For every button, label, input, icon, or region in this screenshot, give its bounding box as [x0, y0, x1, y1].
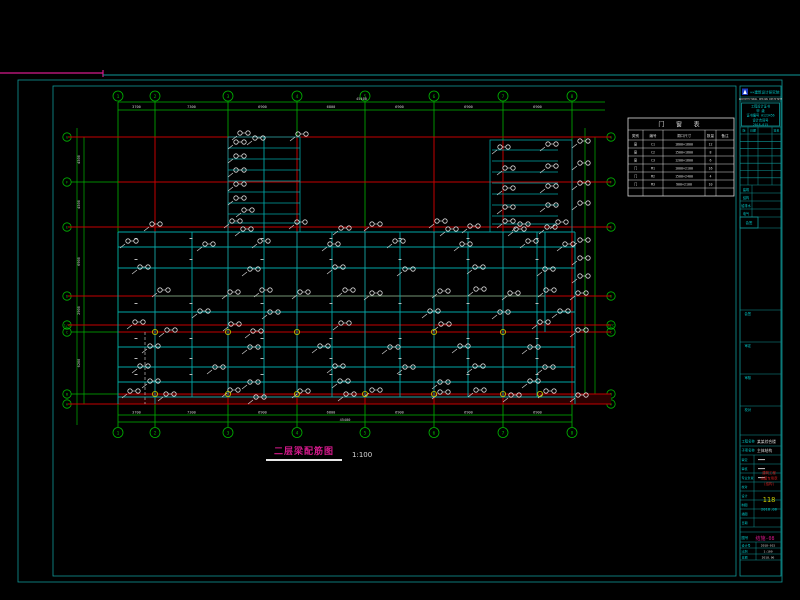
drawing-canvas[interactable]: 1122334455667788GGFFEEDD1/C1/CCCBBAA3700…	[0, 0, 800, 600]
detail-callout-icon	[411, 267, 415, 271]
callout-leader	[322, 247, 327, 251]
detail-callout-icon	[446, 289, 450, 293]
text-label: 6	[433, 94, 436, 100]
text-label: 出图专用章	[761, 475, 779, 480]
detail-callout-icon	[341, 265, 345, 269]
cad-application-window: 1122334455667788GGFFEEDD1/C1/CCCBBAA3700…	[0, 0, 800, 600]
beam-text-mark	[467, 303, 470, 304]
callout-leader	[127, 325, 132, 329]
detail-callout-icon	[156, 344, 160, 348]
detail-callout-icon	[378, 222, 382, 226]
detail-callout-icon	[306, 389, 310, 393]
detail-callout-icon	[468, 224, 472, 228]
detail-callout-icon	[474, 388, 478, 392]
detail-callout-icon	[578, 274, 582, 278]
text-label: 6	[710, 159, 712, 163]
text-label: 6900	[258, 411, 267, 415]
callout-leader	[235, 232, 240, 236]
beam-text-mark	[135, 374, 138, 375]
callout-leader	[572, 243, 577, 247]
beam-text-mark	[399, 358, 402, 359]
text-label: 7	[502, 430, 505, 436]
detail-callout-icon	[438, 289, 442, 293]
text-label: 7300	[187, 105, 196, 109]
detail-callout-icon	[268, 288, 272, 292]
callout-leader	[228, 173, 233, 177]
callout-leader	[245, 334, 250, 338]
text-label: 45400	[340, 418, 351, 422]
text-label: C	[66, 330, 68, 335]
text-label: 窗	[634, 142, 638, 147]
detail-callout-icon	[578, 201, 582, 205]
detail-callout-icon	[158, 288, 162, 292]
text-label: B	[66, 392, 69, 397]
text-label: ××建筑设计研究院	[750, 90, 780, 95]
callout-leader	[572, 144, 577, 148]
detail-callout-icon	[298, 389, 302, 393]
detail-callout-icon	[584, 291, 588, 295]
detail-callout-icon	[237, 322, 241, 326]
detail-callout-icon	[333, 265, 337, 269]
callout-leader	[557, 247, 562, 251]
detail-callout-icon	[347, 226, 351, 230]
detail-callout-icon	[554, 164, 558, 168]
callout-leader	[540, 189, 545, 193]
callout-leader	[192, 314, 197, 318]
text-label: 6200	[77, 359, 81, 368]
staff-signature-mark	[758, 459, 765, 460]
detail-callout-icon	[460, 242, 464, 246]
detail-callout-icon	[447, 322, 451, 326]
callout-leader	[397, 370, 402, 374]
text-label: 比例	[742, 549, 748, 554]
detail-callout-icon	[126, 239, 130, 243]
text-label: 制图	[742, 502, 748, 507]
text-label: 10	[709, 183, 713, 187]
detail-callout-icon	[511, 166, 515, 170]
beam-text-mark	[135, 259, 138, 260]
text-label: 工程名称	[742, 439, 756, 444]
text-label: 审定	[742, 457, 748, 462]
detail-callout-icon	[552, 288, 556, 292]
callout-leader	[382, 350, 387, 354]
detail-callout-icon	[473, 364, 477, 368]
callout-leader	[327, 270, 332, 274]
text-label: 3	[227, 94, 230, 100]
callout-leader	[452, 349, 457, 353]
beam-text-mark	[261, 338, 264, 339]
text-label: 7	[502, 94, 505, 100]
detail-callout-icon	[370, 222, 374, 226]
text-label: 电气	[743, 211, 750, 216]
detail-callout-icon	[166, 288, 170, 292]
detail-callout-icon	[343, 288, 347, 292]
text-label: 1800×1800	[675, 143, 693, 147]
detail-callout-icon	[158, 222, 162, 226]
text-label: 6900	[464, 105, 473, 109]
text-label: 4	[296, 94, 299, 100]
callout-leader	[228, 187, 233, 191]
callout-leader	[572, 279, 577, 283]
detail-callout-icon	[554, 142, 558, 146]
detail-callout-icon	[552, 389, 556, 393]
detail-callout-icon	[203, 242, 207, 246]
callout-leader	[290, 137, 295, 141]
text-label: 建筑	[743, 187, 750, 192]
beam-text-mark	[261, 374, 264, 375]
detail-callout-icon	[576, 291, 580, 295]
beam-text-mark	[467, 259, 470, 260]
detail-callout-icon	[435, 219, 439, 223]
detail-callout-icon	[378, 388, 382, 392]
beam-text-mark	[190, 358, 193, 359]
beam-text-mark	[536, 358, 539, 359]
callout-leader	[142, 384, 147, 388]
detail-callout-icon	[586, 274, 590, 278]
callout-leader	[492, 150, 497, 154]
beam-text-mark	[467, 338, 470, 339]
detail-callout-icon	[481, 265, 485, 269]
detail-callout-icon	[234, 154, 238, 158]
text-label: 数量	[707, 133, 715, 138]
callout-leader	[468, 292, 473, 296]
detail-callout-icon	[156, 379, 160, 383]
callout-leader	[522, 384, 527, 388]
text-label: 审核	[745, 375, 752, 380]
detail-callout-icon	[134, 239, 138, 243]
detail-callout-icon	[266, 239, 270, 243]
detail-callout-icon	[482, 287, 486, 291]
detail-callout-icon	[242, 208, 246, 212]
text-label: 1:100	[763, 550, 772, 554]
beam-text-mark	[330, 358, 333, 359]
callout-leader	[440, 232, 445, 236]
callout-leader	[247, 141, 252, 145]
text-label: 结施-08	[755, 535, 774, 542]
text-label: 45400	[356, 97, 367, 101]
callout-leader	[144, 227, 149, 231]
detail-callout-icon	[534, 239, 538, 243]
detail-callout-icon	[303, 220, 307, 224]
text-label: 窗	[634, 150, 638, 155]
detail-callout-icon	[351, 288, 355, 292]
text-label: 2	[154, 94, 157, 100]
text-label: 审定	[745, 343, 752, 348]
text-label: 8	[571, 430, 574, 436]
text-label: 会签	[746, 220, 753, 225]
detail-callout-icon	[198, 309, 202, 313]
detail-callout-icon	[296, 132, 300, 136]
detail-callout-icon	[242, 140, 246, 144]
text-label: 专业负责	[742, 475, 754, 480]
callout-leader	[454, 247, 459, 251]
text-label: 备注	[721, 133, 729, 138]
text-label: 主体结构	[757, 448, 772, 453]
text-label: 7300	[187, 411, 196, 415]
detail-callout-icon	[546, 142, 550, 146]
detail-callout-icon	[436, 309, 440, 313]
detail-callout-icon	[256, 267, 260, 271]
text-label: C1	[651, 143, 655, 147]
detail-callout-icon	[341, 364, 345, 368]
detail-callout-icon	[248, 267, 252, 271]
callout-leader	[572, 261, 577, 265]
text-label: 2018-015	[761, 544, 776, 548]
text-label: 2900	[77, 306, 81, 315]
detail-callout-icon	[236, 290, 240, 294]
text-label: 16	[709, 167, 713, 171]
detail-callout-icon	[259, 329, 263, 333]
beam-text-mark	[261, 358, 264, 359]
text-label: 编号	[649, 133, 657, 138]
text-label: 6900	[533, 105, 542, 109]
detail-callout-icon	[546, 164, 550, 168]
detail-callout-icon	[333, 364, 337, 368]
detail-callout-icon	[370, 388, 374, 392]
detail-callout-icon	[370, 291, 374, 295]
detail-callout-icon	[473, 265, 477, 269]
detail-callout-icon	[128, 389, 132, 393]
detail-callout-icon	[586, 139, 590, 143]
detail-callout-icon	[578, 139, 582, 143]
beam-text-mark	[261, 238, 264, 239]
beam-text-mark	[261, 303, 264, 304]
text-label: 6800	[327, 411, 336, 415]
stair-core	[490, 140, 572, 232]
detail-callout-icon	[253, 136, 257, 140]
detail-callout-icon	[586, 238, 590, 242]
text-label: M2	[651, 175, 655, 179]
detail-callout-icon	[393, 239, 397, 243]
detail-callout-icon	[250, 208, 254, 212]
detail-callout-icon	[401, 239, 405, 243]
detail-callout-icon	[229, 322, 233, 326]
drawing-title-text: 二层梁配筋图	[266, 444, 342, 461]
callout-leader	[552, 314, 557, 318]
text-label: 日期	[750, 128, 756, 133]
text-label: 6	[433, 430, 436, 436]
callout-leader	[262, 315, 267, 319]
detail-callout-icon	[506, 145, 510, 149]
beam-text-mark	[330, 374, 333, 375]
detail-callout-icon	[234, 196, 238, 200]
detail-callout-icon	[474, 287, 478, 291]
detail-callout-icon	[261, 136, 265, 140]
text-label: 1	[117, 430, 120, 436]
staff-signature-mark	[758, 468, 765, 469]
detail-callout-icon	[336, 242, 340, 246]
beam-text-mark	[536, 374, 539, 375]
text-label: 2018.06	[762, 556, 775, 560]
beam-text-mark	[330, 338, 333, 339]
detail-callout-icon	[536, 379, 540, 383]
beam-text-mark	[399, 259, 402, 260]
text-label: 校对	[745, 407, 752, 412]
detail-callout-icon	[298, 290, 302, 294]
callout-leader	[537, 272, 542, 276]
text-label: 日期	[742, 520, 748, 525]
detail-callout-icon	[428, 309, 432, 313]
beam-text-mark	[135, 338, 138, 339]
beam-text-mark	[536, 238, 539, 239]
text-label: 118	[763, 496, 776, 504]
drawing-scale-label: 1:100	[352, 451, 372, 461]
detail-callout-icon	[328, 242, 332, 246]
text-label: 审核	[742, 466, 748, 471]
detail-callout-icon	[458, 344, 462, 348]
text-label: 版	[742, 128, 745, 133]
callout-leader	[242, 350, 247, 354]
text-label: 3	[227, 430, 230, 436]
text-label: 6900	[77, 257, 81, 266]
callout-leader	[132, 270, 137, 274]
detail-callout-icon	[326, 344, 330, 348]
beam-text-mark	[399, 238, 402, 239]
text-label: 2	[154, 430, 157, 436]
text-label: 2018-015	[753, 123, 768, 127]
beam-text-mark	[536, 259, 539, 260]
beam-text-mark	[190, 259, 193, 260]
detail-callout-icon	[146, 265, 150, 269]
text-label: 1000×2100	[675, 167, 693, 171]
text-label: 5	[364, 430, 367, 436]
detail-callout-icon	[133, 320, 137, 324]
beam-text-mark	[330, 259, 333, 260]
detail-callout-icon	[238, 131, 242, 135]
detail-callout-icon	[339, 226, 343, 230]
detail-callout-icon	[138, 364, 142, 368]
detail-callout-icon	[482, 388, 486, 392]
text-label: 4	[710, 175, 712, 179]
detail-callout-icon	[242, 154, 246, 158]
detail-callout-icon	[146, 364, 150, 368]
text-label: 4500	[77, 200, 81, 209]
callout-leader	[242, 272, 247, 276]
text-label: 6900	[395, 411, 404, 415]
detail-callout-icon	[443, 219, 447, 223]
callout-leader	[540, 208, 545, 212]
detail-callout-icon	[206, 309, 210, 313]
text-label: 给排水	[741, 203, 751, 208]
text-label: 窗	[634, 158, 638, 163]
callout-leader	[508, 232, 513, 236]
callout-leader	[159, 333, 164, 337]
detail-callout-icon	[526, 239, 530, 243]
callout-leader	[492, 315, 497, 319]
detail-callout-icon	[511, 205, 515, 209]
detail-callout-icon	[150, 222, 154, 226]
detail-callout-icon	[578, 238, 582, 242]
detail-callout-icon	[439, 322, 443, 326]
text-label: 工程设计证书	[751, 104, 771, 109]
text-label: 6900	[258, 105, 267, 109]
detail-callout-icon	[556, 220, 560, 224]
detail-callout-icon	[148, 379, 152, 383]
callout-leader	[333, 326, 338, 330]
text-label: 门	[634, 174, 637, 179]
callout-leader	[132, 369, 137, 373]
detail-callout-icon	[148, 344, 152, 348]
detail-callout-icon	[251, 329, 255, 333]
text-label: 1200×1800	[675, 159, 693, 163]
text-label: 门 窗 表	[658, 121, 703, 129]
detail-callout-icon	[538, 320, 542, 324]
text-label: 2018.06	[761, 507, 778, 512]
detail-callout-icon	[481, 364, 485, 368]
text-label: 甲 级	[756, 108, 765, 113]
beam-text-mark	[330, 303, 333, 304]
detail-callout-icon	[551, 267, 555, 271]
detail-callout-icon	[571, 242, 575, 246]
detail-callout-icon	[586, 256, 590, 260]
detail-callout-icon	[346, 379, 350, 383]
detail-callout-icon	[258, 239, 262, 243]
text-label: 描图	[742, 511, 748, 516]
detail-callout-icon	[378, 291, 382, 295]
detail-callout-icon	[544, 389, 548, 393]
detail-callout-icon	[586, 161, 590, 165]
text-label: 日期	[742, 555, 748, 560]
detail-callout-icon	[564, 220, 568, 224]
text-label: 建筑工程	[762, 470, 776, 475]
text-label: 设计合同号	[753, 117, 769, 122]
detail-callout-icon	[528, 379, 532, 383]
callout-leader	[572, 166, 577, 170]
beam-text-mark	[135, 303, 138, 304]
detail-callout-icon	[246, 131, 250, 135]
detail-callout-icon	[511, 219, 515, 223]
detail-callout-icon	[136, 389, 140, 393]
text-label: M3	[651, 183, 655, 187]
detail-callout-icon	[578, 256, 582, 260]
text-label: 类别	[632, 133, 640, 138]
detail-callout-icon	[586, 201, 590, 205]
beam-text-mark	[190, 238, 193, 239]
beam-text-mark	[467, 374, 470, 375]
detail-callout-icon	[236, 388, 240, 392]
callout-leader	[572, 206, 577, 210]
text-label: 会签	[745, 311, 752, 316]
detail-callout-icon	[508, 291, 512, 295]
detail-callout-icon	[304, 132, 308, 136]
text-label: 3700	[132, 411, 141, 415]
callout-leader	[332, 384, 337, 388]
callout-leader	[422, 314, 427, 318]
detail-callout-icon	[511, 186, 515, 190]
text-label: 门	[634, 166, 637, 171]
text-label: C2	[651, 151, 655, 155]
detail-callout-icon	[238, 219, 242, 223]
detail-callout-icon	[242, 196, 246, 200]
callout-leader	[197, 247, 202, 251]
text-label: C3	[651, 159, 655, 163]
text-label: F	[66, 180, 69, 185]
detail-callout-icon	[141, 320, 145, 324]
detail-callout-icon	[546, 320, 550, 324]
text-label: 900×2100	[676, 183, 692, 187]
text-label: 8	[710, 151, 712, 155]
text-label: 图号	[742, 535, 749, 540]
detail-callout-icon	[318, 344, 322, 348]
callout-leader	[532, 325, 537, 329]
callout-leader	[312, 349, 317, 353]
text-label: 6800	[327, 105, 336, 109]
callout-leader	[572, 186, 577, 190]
beam-text-mark	[536, 303, 539, 304]
beam-text-mark	[467, 238, 470, 239]
callout-leader	[397, 272, 402, 276]
text-label: 校对	[742, 484, 748, 489]
